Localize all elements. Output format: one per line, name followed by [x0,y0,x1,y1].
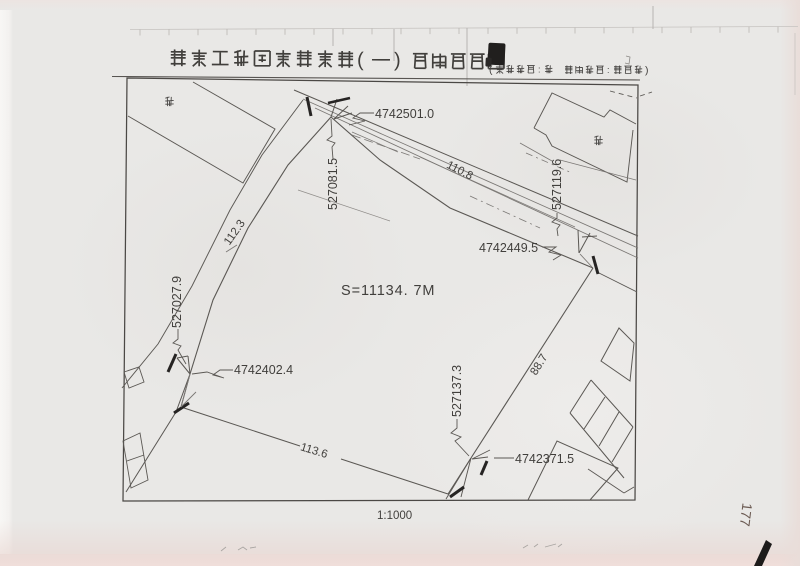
svg-text:): ) [645,65,649,77]
svg-text:527119.6: 527119.6 [550,159,564,210]
svg-text:177: 177 [737,502,756,527]
svg-text:527137.3: 527137.3 [450,365,464,417]
svg-text::: : [538,65,541,75]
svg-text:4742402.4: 4742402.4 [234,363,293,377]
svg-text:4742501.0: 4742501.0 [375,107,434,121]
svg-text:S=11134. 7M: S=11134. 7M [341,283,435,299]
svg-text:527081.5: 527081.5 [326,158,340,210]
svg-text:527027.9: 527027.9 [170,276,184,328]
svg-text:1:1000: 1:1000 [377,510,412,522]
svg-text:): ) [394,49,401,71]
svg-text:4742371.5: 4742371.5 [515,452,574,466]
svg-text:113.6: 113.6 [299,441,329,461]
svg-text:(: ( [489,64,493,76]
svg-text:(: ( [357,49,364,71]
svg-text:4742449.5: 4742449.5 [479,241,538,255]
svg-text::: : [607,65,610,75]
